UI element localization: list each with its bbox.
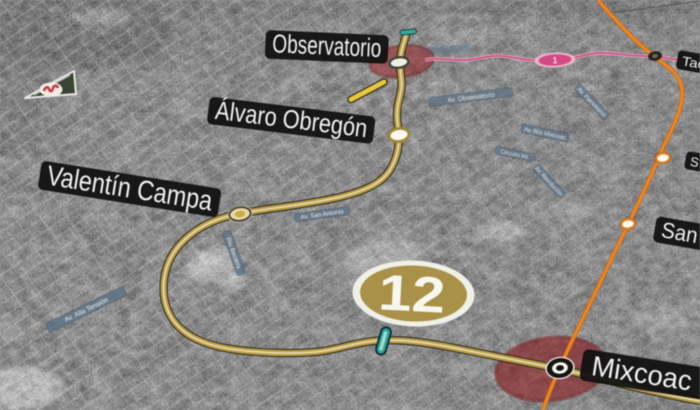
svg-text:Observatorio: Observatorio: [272, 28, 382, 63]
svg-text:12: 12: [377, 264, 447, 324]
svg-text:1: 1: [552, 55, 558, 65]
